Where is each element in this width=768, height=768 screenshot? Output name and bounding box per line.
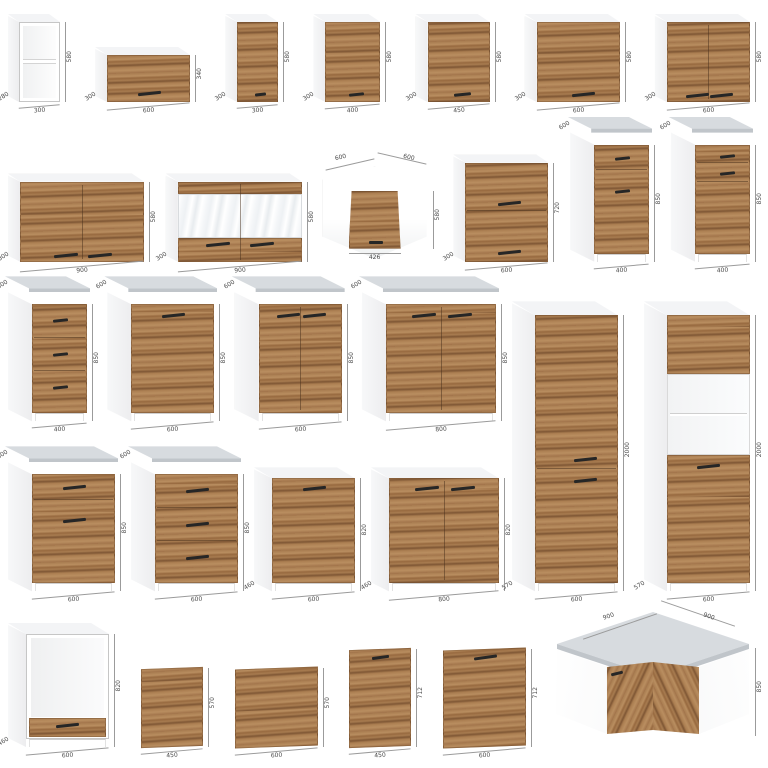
plinth — [29, 739, 106, 747]
front — [235, 668, 318, 747]
side-panel — [525, 16, 537, 102]
plinth — [698, 254, 747, 262]
dim-width-label: 600 — [235, 749, 318, 762]
shelf — [23, 59, 56, 64]
width-dimension: 600 — [667, 102, 750, 117]
dim-depth-label: 300 — [215, 91, 228, 102]
wall-open-shelf-300: 580300280 — [5, 6, 73, 117]
plinth — [670, 583, 747, 591]
door-area — [20, 182, 144, 262]
handle — [53, 353, 68, 358]
dim-width-label: 600 — [402, 153, 415, 161]
plinth — [35, 413, 84, 421]
side-panel — [166, 176, 178, 262]
front — [386, 304, 496, 421]
side-panel — [8, 625, 26, 747]
dim-width-label: 600 — [334, 153, 347, 161]
width-dimension: 600 — [26, 747, 109, 762]
worktop — [567, 117, 652, 133]
top-panel — [95, 47, 190, 55]
door-area — [386, 304, 496, 413]
dim-height-label: 712 — [418, 687, 424, 698]
front — [131, 304, 214, 421]
front — [325, 22, 380, 102]
handle — [63, 518, 86, 523]
base-sink-2door-800: 820800460 — [368, 459, 512, 606]
dim-height-label: 580 — [435, 209, 441, 220]
side-panel — [644, 303, 667, 591]
front-panel — [141, 667, 203, 748]
oven-niche — [31, 638, 104, 717]
side-panel — [8, 176, 20, 262]
dim-width-label: 900 — [602, 612, 615, 621]
handle — [574, 457, 597, 462]
door-seam — [697, 181, 748, 182]
side-panel — [8, 16, 19, 102]
width-dimension: 450 — [427, 103, 489, 116]
plinth — [275, 583, 352, 591]
width-dimension: 400 — [695, 263, 750, 276]
oven-niche — [667, 374, 750, 454]
width-dimension: 600 — [32, 592, 115, 607]
oven-housing-base-600: 820600460 — [5, 615, 122, 762]
top-panel — [313, 14, 380, 22]
side-panel — [131, 462, 155, 591]
door-seam — [157, 540, 236, 541]
handle — [448, 313, 472, 318]
tall-oven-housing-600: 2000600570 — [641, 293, 763, 606]
door-seam — [34, 370, 85, 371]
tall-pantry-600: 2000600570 — [509, 293, 631, 606]
dim-height-label: 2000 — [757, 442, 763, 457]
side-panel — [8, 292, 32, 421]
front — [695, 145, 750, 262]
side-panel — [235, 292, 259, 421]
door-area — [389, 478, 499, 583]
dim-door-label: 426 — [349, 255, 401, 261]
door-area — [465, 163, 548, 262]
door-area — [667, 22, 750, 102]
dim-height-label: 580 — [627, 51, 633, 62]
worktop — [128, 446, 241, 462]
width-dimension: 600 — [465, 262, 548, 277]
top-panel — [453, 155, 548, 163]
dim-depth-label: 280 — [0, 91, 10, 102]
dim-height-label: 580 — [757, 51, 763, 62]
top-panel — [254, 467, 355, 478]
width-dimension: 600 — [272, 592, 355, 607]
worktop — [359, 276, 499, 292]
dim-width-label: 600 — [272, 594, 355, 607]
width-dimension: 400 — [325, 104, 380, 117]
door-seam — [300, 307, 301, 410]
dim-height-label: 720 — [555, 202, 561, 213]
width-dimension: 300 — [237, 104, 279, 116]
width-dimension: 450 — [141, 748, 203, 761]
door-area — [237, 22, 278, 102]
plinth — [392, 583, 496, 591]
oven-carcass — [26, 634, 109, 739]
dim-width-label: 600 — [107, 104, 190, 117]
dim-height-label: 2000 — [625, 442, 631, 457]
base-door-600: 850600600 — [104, 280, 227, 436]
width-dimension: 400 — [32, 423, 87, 436]
front-panel — [349, 648, 411, 748]
dim-height-label: 712 — [533, 687, 539, 698]
dim-width-label: 600 — [535, 594, 618, 607]
handle — [138, 91, 161, 96]
worktop — [104, 276, 217, 292]
dim-height-label: 820 — [116, 680, 122, 691]
upper-door — [667, 315, 750, 374]
door-area — [537, 22, 620, 102]
dim-width-label: 600 — [667, 594, 750, 607]
width-dimension: 600 — [234, 747, 317, 762]
base-2drawer-door-400: 850400600 — [668, 121, 763, 277]
plinth — [389, 413, 493, 421]
door-seam — [34, 337, 85, 338]
wall-cabinet-450: 580450300 — [413, 6, 503, 117]
door-seam — [444, 481, 445, 580]
width-dimension: 450 — [349, 748, 411, 761]
door-seam — [240, 184, 241, 260]
base-cabinets-row-2: 850600600850600600820600460820800460 — [5, 450, 509, 606]
width-dimension: 600 — [107, 102, 190, 117]
dim-line — [325, 158, 374, 170]
handle — [63, 485, 86, 490]
wall-and-base-row: 5809003005809003006006005804267206003008… — [5, 121, 763, 277]
handle — [720, 154, 735, 159]
dim-width-label: 600 — [443, 749, 526, 762]
handle — [454, 92, 471, 97]
worktop — [5, 446, 118, 462]
wall-glass-cabinet-900: 580900300 — [163, 166, 315, 277]
handle — [415, 486, 439, 491]
handle — [255, 92, 266, 96]
dim-depth-label: 300 — [84, 91, 97, 102]
door-area — [667, 315, 750, 583]
wall-cabinet-2door-600: 580600300 — [652, 6, 763, 117]
plinth — [262, 413, 339, 421]
side-panel — [655, 16, 667, 102]
wall-cabinets-row: 5803002803406003005803003005804003005804… — [5, 6, 763, 117]
door-area — [272, 478, 355, 583]
base-2door-600: 850600600 — [232, 280, 355, 436]
corner-door — [349, 191, 401, 249]
front — [272, 478, 355, 591]
handle — [474, 654, 497, 660]
door-area — [428, 22, 490, 102]
front — [19, 22, 60, 102]
worktop — [668, 117, 753, 133]
top-panel — [525, 14, 620, 22]
dim-height-label: 340 — [197, 68, 203, 79]
side-panel — [8, 462, 32, 591]
dim-depth-label: 300 — [405, 91, 418, 102]
front — [667, 315, 750, 591]
handle — [349, 92, 364, 97]
side-panel — [313, 16, 325, 102]
lower-door — [667, 455, 750, 584]
front — [535, 315, 618, 591]
tall-cabinets-group: 20006005702000600570 — [509, 293, 763, 606]
worktop — [232, 276, 345, 292]
handle — [186, 555, 209, 560]
dim-width-label: 600 — [537, 104, 620, 117]
front-panel — [443, 648, 526, 749]
width-dimension: 600 — [131, 422, 214, 437]
top-panel — [371, 467, 499, 478]
dim-height-label: 580 — [67, 51, 73, 62]
side-panel — [416, 16, 428, 102]
dim-width-label: 600 — [26, 749, 109, 762]
dim-width-label: 600 — [465, 264, 548, 277]
door-area — [325, 22, 380, 102]
front — [428, 22, 490, 102]
front — [389, 478, 499, 591]
worktop — [5, 276, 90, 292]
cabinet-catalog-sheet: 5803002803406003005803003005804003005804… — [0, 0, 768, 768]
handle — [53, 319, 68, 324]
open-carcass — [19, 22, 60, 102]
dim-width-label: 600 — [259, 424, 342, 437]
front — [537, 22, 620, 102]
base-3drawer-400: 850400600 — [5, 280, 100, 436]
handle — [498, 249, 521, 254]
base-and-tall-section: 8504006008506006008506006008508006008506… — [5, 280, 763, 606]
dim-width-label: 600 — [155, 594, 238, 607]
side-panel — [371, 469, 389, 591]
door-area — [178, 182, 302, 262]
width-dimension: 600 — [258, 422, 341, 437]
handle — [498, 200, 521, 205]
front — [443, 649, 526, 747]
front — [259, 304, 342, 421]
front — [20, 182, 144, 262]
front — [237, 22, 278, 102]
door-area — [695, 145, 750, 254]
side-panel — [512, 303, 535, 591]
top-panel — [8, 623, 109, 634]
front — [465, 163, 548, 262]
dim-width-label: 600 — [667, 104, 750, 117]
front — [594, 145, 649, 262]
base-drawer-door-400: 850400600 — [567, 121, 662, 277]
front — [141, 668, 203, 747]
door-seam — [157, 507, 236, 508]
front — [155, 474, 238, 591]
handle — [186, 488, 209, 493]
door-width-dim: 426 — [349, 253, 401, 261]
top-panel — [8, 174, 144, 182]
plinth — [134, 413, 211, 421]
base-sink-door-600: 820600460 — [251, 459, 368, 606]
handle — [412, 313, 436, 318]
front — [667, 22, 750, 102]
handle — [372, 655, 389, 660]
handle — [615, 156, 630, 161]
side-panel — [107, 292, 131, 421]
dim-height-label: 570 — [210, 697, 216, 708]
door-seam — [697, 162, 748, 163]
handle — [162, 313, 185, 318]
door-area — [259, 304, 342, 413]
door-seam — [596, 169, 647, 170]
handle — [710, 93, 733, 98]
base-cabinets-row-1: 850400600850600600850600600850800600 — [5, 280, 509, 436]
handle — [53, 386, 68, 391]
dim-height-label: 580 — [309, 211, 315, 222]
side-panel — [453, 157, 465, 262]
width-dimension: 300 — [19, 104, 61, 116]
panels-and-corner-row: 8206004605704505706007124507126009009008… — [5, 610, 763, 762]
handle — [55, 723, 78, 728]
dim-height-label: 850 — [757, 681, 763, 692]
side-panel — [570, 133, 594, 262]
plinth — [158, 583, 235, 591]
front — [107, 55, 190, 102]
front — [32, 474, 115, 591]
top-panel — [416, 14, 490, 22]
handle — [572, 92, 595, 97]
wall-corner-cabinet-600x600: 600600580426 — [321, 155, 445, 277]
base-2door-800: 850800600 — [359, 280, 509, 436]
dim-depth-label: 300 — [155, 251, 168, 262]
dim-width-label: 600 — [131, 424, 214, 437]
door-area — [535, 315, 618, 583]
front — [32, 304, 87, 421]
dim-height-label: 850 — [656, 193, 662, 204]
dim-depth-label: 460 — [0, 736, 10, 747]
wall-cabinet-300: 580300300 — [222, 6, 291, 117]
base-drawer-door-600: 850600600 — [5, 450, 128, 606]
dim-depth-label: 300 — [644, 91, 657, 102]
dim-width-label: 900 — [702, 612, 715, 621]
handle — [277, 313, 300, 318]
width-dimension: 600 — [155, 592, 238, 607]
door-area — [594, 145, 649, 254]
door-seam — [82, 185, 83, 259]
base-3drawer-600: 850600600 — [128, 450, 251, 606]
door-area — [155, 474, 238, 583]
front-panel-450x712: 712450 — [346, 641, 424, 762]
door-area — [32, 304, 87, 413]
handle — [451, 486, 475, 491]
handle — [720, 171, 735, 176]
wall-cabinet-2door-900: 580900300 — [5, 166, 157, 277]
plinth — [35, 583, 112, 591]
door-seam — [34, 499, 113, 500]
handle — [369, 241, 383, 244]
side-panel — [225, 16, 237, 102]
width-dimension: 600 — [443, 747, 526, 762]
dim-depth-label: 570 — [633, 581, 646, 592]
door-area — [32, 474, 115, 583]
side-panel — [254, 469, 272, 591]
dim-height-label: 850 — [349, 352, 355, 363]
front — [178, 182, 302, 262]
side-panel — [95, 49, 107, 102]
dim-width-label: 600 — [32, 594, 115, 607]
corner-base-cabinet-900x900: 900900850 — [555, 610, 763, 762]
handle — [54, 252, 78, 257]
base-cabinets-columns: 8504006008506006008506006008508006008506… — [5, 280, 509, 606]
dim-height-label: 580 — [285, 51, 291, 62]
front-panel-600x570: 570600 — [232, 660, 331, 762]
width-dimension: 800 — [389, 591, 499, 609]
handle — [686, 93, 709, 98]
wall-cabinet-400: 580400300 — [310, 6, 393, 117]
handle — [615, 189, 630, 194]
dim-height-label: 580 — [151, 211, 157, 222]
front-panel-450x570: 570450 — [138, 660, 216, 762]
width-dimension: 600 — [535, 592, 618, 607]
handle — [303, 313, 326, 318]
handle — [303, 486, 326, 491]
side-panel — [362, 292, 386, 421]
niche-shelf — [670, 413, 747, 416]
door-seam — [467, 210, 546, 211]
width-dimension: 800 — [386, 421, 496, 439]
front — [26, 634, 109, 747]
handle — [186, 522, 209, 527]
front — [349, 649, 411, 747]
dim-height-label: 570 — [325, 697, 331, 708]
dim-depth-label: 300 — [514, 91, 527, 102]
width-dimension: 400 — [594, 263, 649, 276]
door-seam — [708, 25, 709, 99]
top-panel — [166, 174, 302, 182]
door-area — [107, 55, 190, 102]
plinth — [538, 583, 615, 591]
front-panel — [235, 667, 318, 749]
door-area — [131, 304, 214, 413]
handle — [574, 478, 597, 483]
door-seam — [537, 468, 616, 469]
dim-height-label: 850 — [757, 193, 763, 204]
width-dimension: 600 — [537, 102, 620, 117]
dim-height-label: 580 — [387, 51, 393, 62]
plinth — [597, 254, 646, 262]
wall-flap-cabinet-600: 340600300 — [92, 39, 203, 117]
front-panel-600x712: 712600 — [440, 641, 539, 762]
dim-height-label: 850 — [94, 352, 100, 363]
dim-height-label: 580 — [497, 51, 503, 62]
handle — [88, 252, 112, 257]
oven-drawer-front — [29, 718, 106, 737]
side-panel — [671, 133, 695, 262]
width-dimension: 600 — [667, 592, 750, 607]
door-seam — [441, 307, 442, 410]
wall-cabinet-600: 580600300 — [522, 6, 633, 117]
top-panel — [655, 14, 750, 22]
wall-2flap-cabinet-600: 720600300 — [450, 147, 561, 277]
dim-height-label: 850 — [221, 352, 227, 363]
